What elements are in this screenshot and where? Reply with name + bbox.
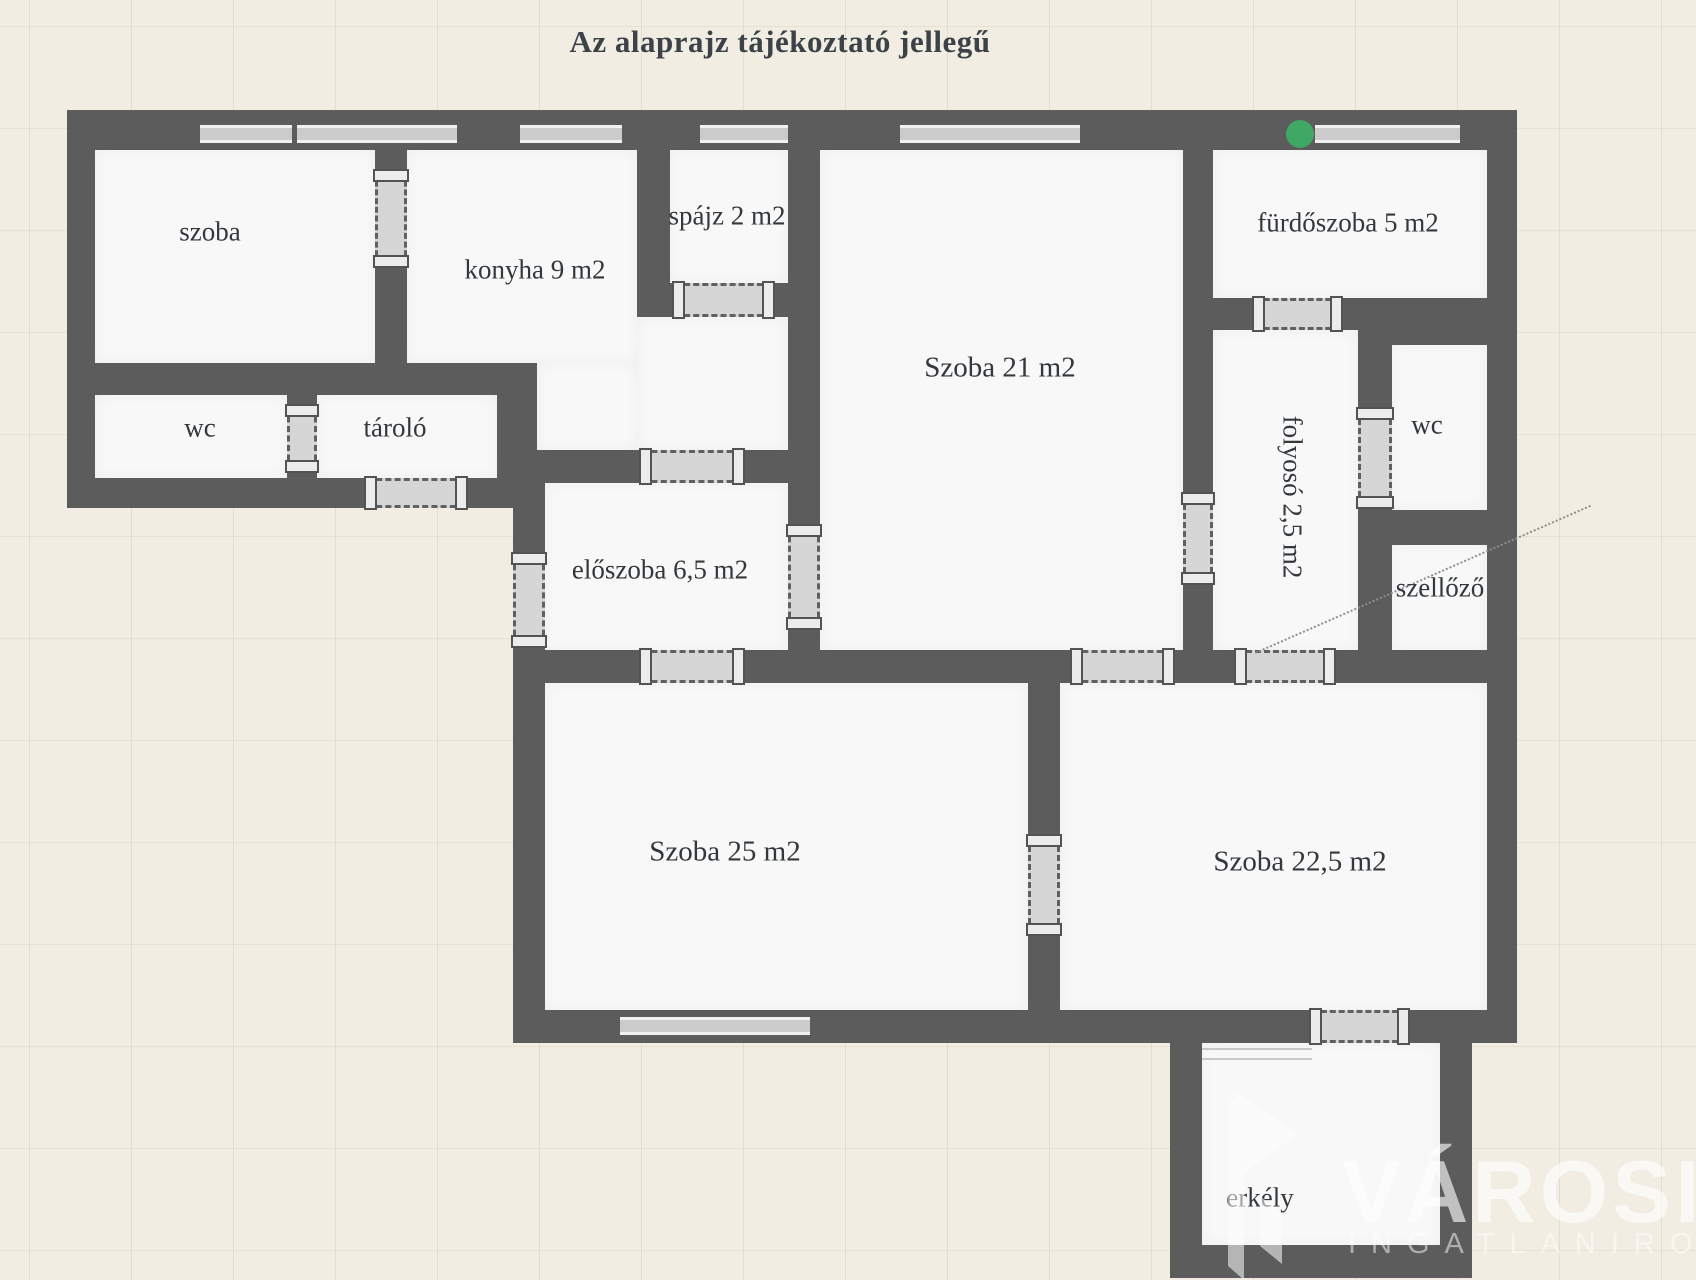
window-szoba25-bottom: [620, 1017, 810, 1035]
door-eloszoba-szoba21: [788, 527, 820, 627]
room-label-wc-left: wc: [184, 413, 215, 444]
window-furdoszoba: [1315, 125, 1460, 143]
window-szoba-2: [297, 125, 457, 143]
room-erkely-floor: [1202, 1043, 1440, 1245]
door-folyoso-wc: [1358, 410, 1392, 506]
door-erkely: [1312, 1010, 1407, 1043]
door-furdoszoba: [1255, 298, 1340, 330]
floorplan-canvas: Az alaprajz tájékoztató jellegű sz: [0, 0, 1696, 1280]
door-eloszoba-left: [513, 555, 545, 645]
room-label-szellozo: szellőző: [1396, 573, 1484, 604]
room-label-erkely: erkély: [1226, 1183, 1293, 1214]
plan-disclaimer-title: Az alaprajz tájékoztató jellegű: [570, 24, 991, 60]
door-eloszoba-top: [642, 450, 742, 483]
door-entrance-tarolo: [367, 478, 465, 508]
window-spajz: [700, 125, 788, 143]
door-szoba21-szoba225: [1073, 650, 1172, 683]
door-spajz: [675, 283, 772, 317]
door-szoba25-szoba225: [1028, 837, 1060, 933]
room-label-konyha: konyha 9 m2: [465, 255, 606, 286]
entrance-marker-dot: [1286, 120, 1314, 148]
door-wc-tarolo: [287, 407, 317, 470]
room-szoba-floor: [95, 150, 375, 363]
room-label-szoba21: Szoba 21 m2: [924, 352, 1075, 385]
door-folyoso-szoba21: [1183, 495, 1213, 582]
door-szoba-konyha: [375, 172, 407, 265]
window-konyha: [520, 125, 622, 143]
room-label-tarolo: tároló: [364, 413, 427, 444]
room-label-szoba: szoba: [179, 217, 240, 248]
room-label-wc-right: wc: [1411, 410, 1442, 441]
door-eloszoba-szoba25: [642, 650, 742, 683]
room-konyha-hall-floor: [537, 363, 637, 450]
room-label-szoba25: Szoba 25 m2: [649, 836, 800, 869]
room-label-szoba225: Szoba 22,5 m2: [1213, 846, 1386, 879]
room-szoba21-floor: [820, 150, 1183, 650]
room-label-furdoszoba: fürdőszoba 5 m2: [1257, 208, 1438, 239]
room-konyha-hall-floor-2: [637, 317, 788, 450]
room-label-eloszoba: előszoba 6,5 m2: [572, 555, 748, 586]
window-szoba-1: [200, 125, 292, 143]
window-szoba21: [900, 125, 1080, 143]
door-folyoso-szoba225: [1237, 650, 1333, 683]
room-label-folyoso: folyosó 2,5 m2: [1277, 416, 1308, 579]
room-label-spajz: spájz 2 m2: [669, 201, 786, 232]
balcony-railing-line: [1202, 1048, 1312, 1060]
